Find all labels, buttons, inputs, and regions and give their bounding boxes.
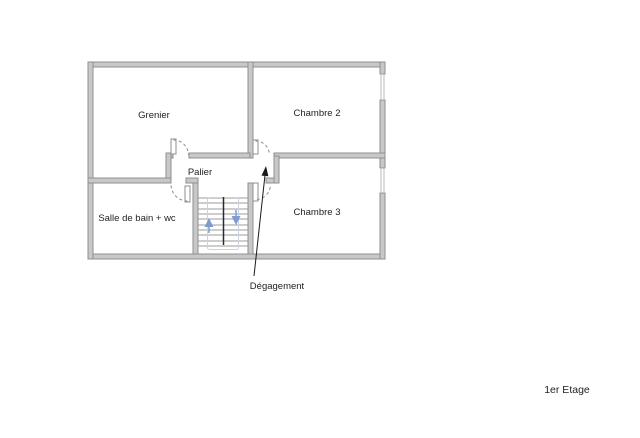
walls [88, 62, 385, 259]
room-label-chambre3: Chambre 3 [294, 207, 341, 218]
wall-stairs-left [193, 183, 198, 254]
door-leaf-chambre2 [253, 140, 258, 154]
wall-outer-right-seg1 [380, 62, 385, 74]
wall-outer-right-seg3 [380, 193, 385, 259]
floor-plan-page: Grenier Chambre 2 Palier Salle de bain +… [0, 0, 640, 438]
window-chambre3-icon [381, 169, 384, 192]
staircase [198, 197, 248, 250]
room-label-chambre2: Chambre 2 [294, 108, 341, 119]
wall-palier-top [189, 153, 250, 158]
stair-up-arrow-icon [205, 218, 214, 233]
room-label-palier: Palier [188, 167, 212, 178]
door-leaf-bathroom [185, 186, 190, 202]
door-leaf-chambre3 [253, 183, 258, 201]
wall-palier-right [274, 156, 279, 183]
door-bathroom [171, 185, 190, 203]
stair-down-arrow-icon [232, 210, 241, 225]
door-chambre3 [253, 183, 271, 201]
floor-plan-drawing: Grenier Chambre 2 Palier Salle de bain +… [0, 0, 640, 438]
wall-palier-bottom-mid [186, 178, 198, 183]
degagement-arrowhead-icon [262, 166, 269, 176]
door-chambre2 [253, 140, 270, 155]
wall-outer-left [88, 62, 93, 259]
wall-outer-top [88, 62, 385, 67]
floor-title: 1er Etage [544, 384, 590, 396]
annotation-label-degagement: Dégagement [250, 281, 305, 292]
door-grenier [171, 139, 189, 155]
wall-palier-right-foot [266, 178, 274, 183]
wall-stairs-right [248, 183, 253, 254]
room-label-grenier: Grenier [138, 110, 170, 121]
wall-outer-bottom [88, 254, 385, 259]
window-chambre2-icon [381, 75, 384, 99]
room-label-salle-de-bain: Salle de bain + wc [98, 213, 176, 224]
wall-chambre2-chambre3-divider [274, 153, 385, 158]
wall-bathroom-top [88, 178, 171, 183]
wall-grenier-chambre2-divider [248, 62, 253, 158]
door-leaf-grenier [171, 139, 176, 154]
